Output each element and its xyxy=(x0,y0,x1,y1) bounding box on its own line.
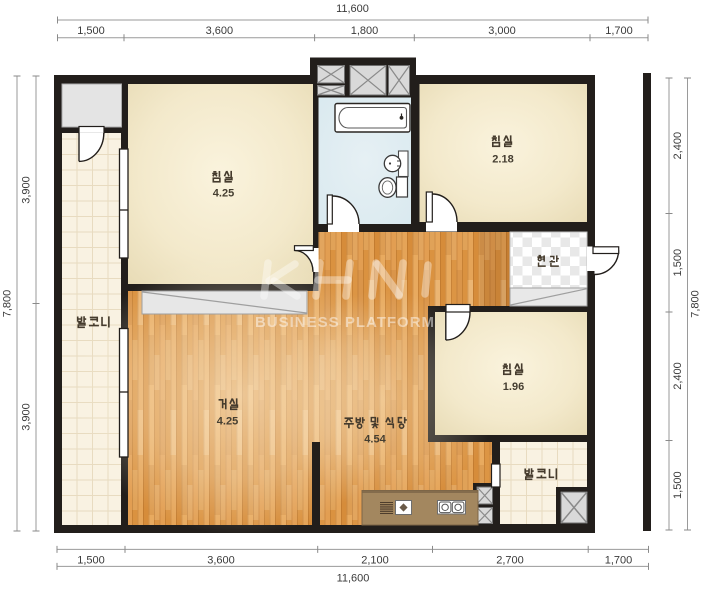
svg-text:4.54: 4.54 xyxy=(364,434,386,446)
svg-text:1,700: 1,700 xyxy=(605,555,633,567)
svg-text:2,100: 2,100 xyxy=(361,555,389,567)
svg-text:1,500: 1,500 xyxy=(77,555,105,567)
svg-text:1,500: 1,500 xyxy=(672,471,684,499)
svg-text:1,500: 1,500 xyxy=(672,249,684,277)
svg-text:1,500: 1,500 xyxy=(77,25,105,37)
svg-text:3,000: 3,000 xyxy=(488,25,516,37)
svg-text:1.96: 1.96 xyxy=(503,381,524,393)
svg-text:7,800: 7,800 xyxy=(2,290,14,318)
svg-text:1,700: 1,700 xyxy=(605,25,633,37)
svg-text:3,900: 3,900 xyxy=(21,403,33,431)
svg-text:4.25: 4.25 xyxy=(213,188,234,200)
svg-text:4.25: 4.25 xyxy=(217,416,238,428)
svg-text:11,600: 11,600 xyxy=(336,3,369,15)
svg-text:11,600: 11,600 xyxy=(337,573,370,585)
svg-text:2.18: 2.18 xyxy=(492,154,513,166)
svg-text:BUSINESS PLATFORM: BUSINESS PLATFORM xyxy=(255,314,435,331)
svg-text:3,600: 3,600 xyxy=(206,25,234,37)
svg-text:1,800: 1,800 xyxy=(351,25,379,37)
svg-text:2,400: 2,400 xyxy=(672,132,684,160)
svg-text:2,700: 2,700 xyxy=(496,555,524,567)
svg-text:7,800: 7,800 xyxy=(690,290,702,318)
svg-text:3,600: 3,600 xyxy=(207,555,235,567)
svg-text:2,400: 2,400 xyxy=(672,362,684,390)
svg-text:3,900: 3,900 xyxy=(21,176,33,204)
